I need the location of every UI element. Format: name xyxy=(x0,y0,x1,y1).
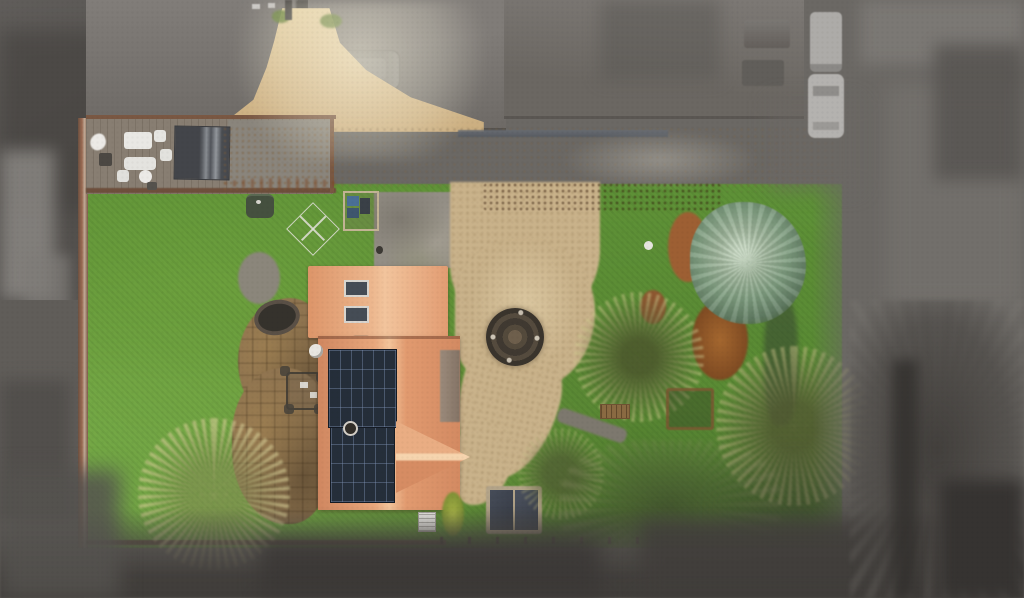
chimney-vent xyxy=(343,421,358,436)
patio-chair-dark xyxy=(280,366,290,376)
oil-tank-label xyxy=(256,200,261,204)
garage-roof xyxy=(308,266,448,338)
garden-ball xyxy=(644,241,653,250)
parked-van-white xyxy=(810,12,842,72)
concrete-pad xyxy=(374,192,462,268)
bin-dark xyxy=(360,198,370,214)
grey-tree-trunk xyxy=(892,360,918,598)
patio-cushion-white xyxy=(300,382,308,388)
conifer-texture xyxy=(690,202,806,324)
aerial-photo xyxy=(0,0,1024,598)
edge-fade-bottom-left xyxy=(0,470,120,598)
solar-array-1 xyxy=(328,349,397,428)
entrance-light-wash xyxy=(210,0,510,160)
patio-chair-dark-3 xyxy=(284,404,294,414)
patio-lounger-white xyxy=(124,157,156,170)
oil-tank xyxy=(246,194,274,218)
car-windshield xyxy=(813,86,839,96)
fire-pit-stones xyxy=(486,308,544,366)
grey-tree-silhouette-top xyxy=(934,44,1024,180)
patio-chair-white xyxy=(154,130,166,142)
skylight-1 xyxy=(344,280,369,297)
satellite-dish xyxy=(309,344,323,358)
play-structure xyxy=(666,388,714,430)
parked-van-dark-1 xyxy=(744,20,790,48)
dark-seat xyxy=(147,182,157,190)
skylight-2 xyxy=(344,306,369,323)
manhole-dot xyxy=(376,246,383,254)
dark-planter xyxy=(99,153,112,166)
drive-light-wash xyxy=(560,130,760,190)
bottom-dark-patch xyxy=(260,540,600,598)
flat-roof-strip xyxy=(440,350,460,422)
bottom-right-dark xyxy=(940,480,1024,598)
leaf-debris xyxy=(224,178,342,189)
roof-eave-shadow xyxy=(318,336,460,339)
patio-chair-white-2 xyxy=(160,149,172,161)
stepping-stones xyxy=(238,252,280,304)
patio-table-white xyxy=(124,132,152,149)
bin-blue xyxy=(347,196,359,206)
roof-shadow xyxy=(600,0,720,80)
parked-van-dark-2 xyxy=(742,60,784,86)
solar-array-2 xyxy=(330,427,395,503)
bin-navy xyxy=(347,208,359,218)
car-rear-window xyxy=(813,122,839,130)
garden-bench xyxy=(600,404,630,419)
patio-cushion-white-2 xyxy=(310,392,317,398)
patio-chair-white-3 xyxy=(117,170,129,182)
